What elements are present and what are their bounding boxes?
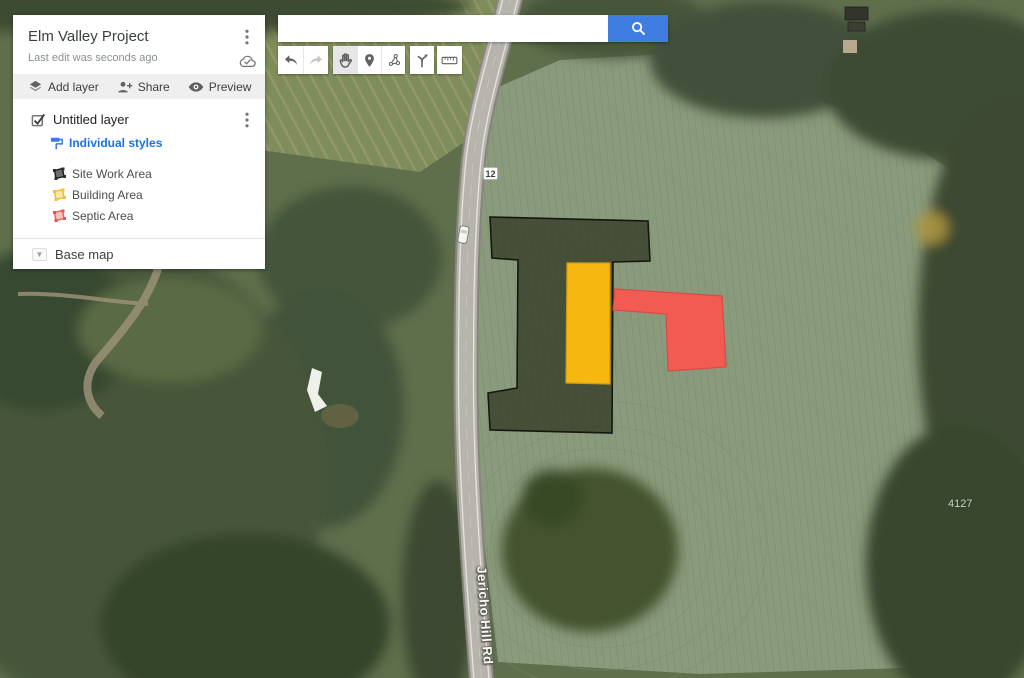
search-bar bbox=[278, 15, 668, 42]
layer-visibility-checkbox[interactable] bbox=[31, 112, 46, 127]
site-work-label: Site Work Area bbox=[72, 167, 152, 181]
pan-tool-button[interactable] bbox=[333, 46, 357, 74]
person-add-icon bbox=[117, 80, 133, 94]
redo-icon bbox=[308, 53, 324, 67]
hand-icon bbox=[339, 53, 352, 68]
site-work-swatch-icon bbox=[52, 167, 66, 180]
measure-button[interactable] bbox=[437, 46, 462, 74]
individual-styles-button[interactable]: Individual styles bbox=[50, 135, 265, 150]
last-edit-status[interactable]: Last edit was seconds ago bbox=[28, 52, 250, 64]
my-maps-editor: 12 Jericho Hill Rd 4127 Elm Valley Proje… bbox=[0, 0, 1024, 678]
directions-group bbox=[410, 46, 434, 74]
draw-line-button[interactable] bbox=[381, 46, 405, 74]
layer-name[interactable]: Untitled layer bbox=[53, 112, 129, 127]
route-12-badge: 12 bbox=[483, 167, 498, 180]
parcel-number-label: 4127 bbox=[948, 498, 972, 510]
eye-icon bbox=[188, 81, 204, 93]
layer-block: Untitled layer Individual styles bbox=[13, 99, 265, 238]
base-map-row[interactable]: ▼ Base map bbox=[13, 239, 265, 269]
individual-styles-label: Individual styles bbox=[69, 136, 162, 150]
building-swatch-icon bbox=[52, 188, 66, 201]
polyline-icon bbox=[387, 53, 401, 67]
marker-icon bbox=[364, 53, 375, 68]
layer-menu-button[interactable] bbox=[239, 111, 255, 129]
draw-tools-group bbox=[333, 46, 405, 74]
map-title[interactable]: Elm Valley Project bbox=[28, 28, 250, 45]
kebab-icon bbox=[245, 29, 249, 45]
map-info-panel: Elm Valley Project Last edit was seconds… bbox=[13, 15, 265, 269]
measure-group bbox=[437, 46, 462, 74]
add-layer-button[interactable]: Add layer bbox=[19, 74, 108, 99]
undo-redo-group bbox=[278, 46, 328, 74]
undo-icon bbox=[283, 53, 299, 67]
panel-header: Elm Valley Project Last edit was seconds… bbox=[13, 15, 265, 74]
building-label: Building Area bbox=[72, 188, 143, 202]
search-button[interactable] bbox=[608, 15, 668, 42]
panel-actions-bar: Add layer Share Preview bbox=[13, 74, 265, 99]
map-menu-button[interactable] bbox=[239, 28, 255, 46]
search-icon bbox=[631, 21, 646, 36]
share-button[interactable]: Share bbox=[108, 74, 179, 99]
base-map-expand-icon[interactable]: ▼ bbox=[32, 248, 47, 261]
search-input[interactable] bbox=[278, 15, 608, 42]
paint-roller-icon bbox=[50, 136, 64, 150]
cloud-saved-icon bbox=[239, 55, 257, 73]
share-label: Share bbox=[138, 80, 170, 94]
building-area-polygon[interactable] bbox=[566, 263, 610, 384]
directions-icon bbox=[415, 53, 429, 68]
preview-button[interactable]: Preview bbox=[179, 74, 261, 99]
ruler-icon bbox=[441, 55, 458, 66]
undo-button[interactable] bbox=[278, 46, 303, 74]
preview-label: Preview bbox=[209, 80, 252, 94]
add-marker-button[interactable] bbox=[357, 46, 381, 74]
legend-item-building[interactable]: Building Area bbox=[52, 184, 265, 205]
legend-item-septic[interactable]: Septic Area bbox=[52, 205, 265, 226]
kebab-icon bbox=[245, 112, 249, 128]
septic-swatch-icon bbox=[52, 209, 66, 222]
legend-item-site-work[interactable]: Site Work Area bbox=[52, 163, 265, 184]
septic-label: Septic Area bbox=[72, 209, 133, 223]
add-layer-label: Add layer bbox=[48, 80, 99, 94]
redo-button[interactable] bbox=[303, 46, 328, 74]
layers-icon bbox=[28, 79, 43, 94]
base-map-label: Base map bbox=[55, 247, 114, 262]
add-directions-button[interactable] bbox=[410, 46, 434, 74]
layer-legend: Site Work Area Building Area bbox=[13, 163, 265, 226]
